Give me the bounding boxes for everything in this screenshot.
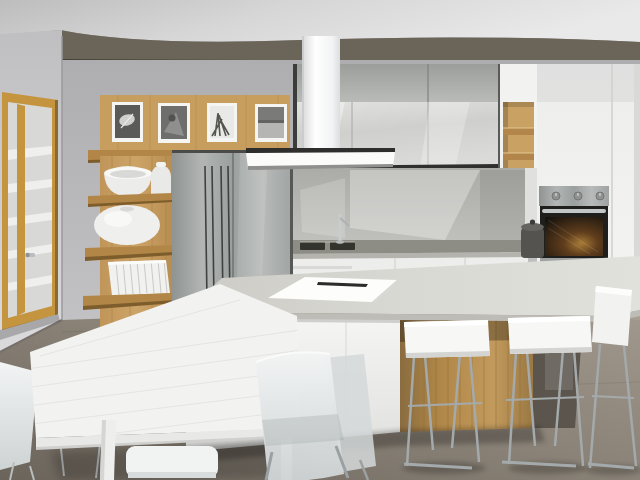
kitchen-render-canvas <box>0 0 640 480</box>
backsplash <box>293 168 525 243</box>
oven-knob <box>596 192 604 200</box>
wood-niche <box>503 102 534 170</box>
door-frame-edge <box>55 100 58 315</box>
tall-cabinet-gloss <box>537 64 640 102</box>
binders-row <box>108 260 170 296</box>
white-vase-small-lid <box>156 162 166 167</box>
backsplash-shade <box>480 170 525 243</box>
framed-artwork <box>207 103 237 142</box>
chair-seat-edge <box>128 472 216 478</box>
oven-knob <box>552 192 560 200</box>
dining-chair <box>126 446 218 478</box>
pantry-door <box>0 92 60 340</box>
niche-shelf <box>503 153 534 160</box>
canister <box>521 219 544 258</box>
door-stile <box>17 104 25 316</box>
oven-knob <box>574 192 582 200</box>
framed-artwork <box>158 103 190 143</box>
hood-chimney <box>302 36 340 152</box>
niche-shelf <box>503 128 534 135</box>
white-vase-small <box>151 166 171 196</box>
oven-handle <box>542 209 606 213</box>
framed-artwork <box>112 102 143 142</box>
door-handle <box>25 253 35 257</box>
oven <box>539 186 609 263</box>
framed-artwork <box>255 104 287 142</box>
kitchen-render <box>0 0 640 480</box>
drawer-handle-groove <box>292 266 352 269</box>
white-vase-oval <box>94 205 160 245</box>
